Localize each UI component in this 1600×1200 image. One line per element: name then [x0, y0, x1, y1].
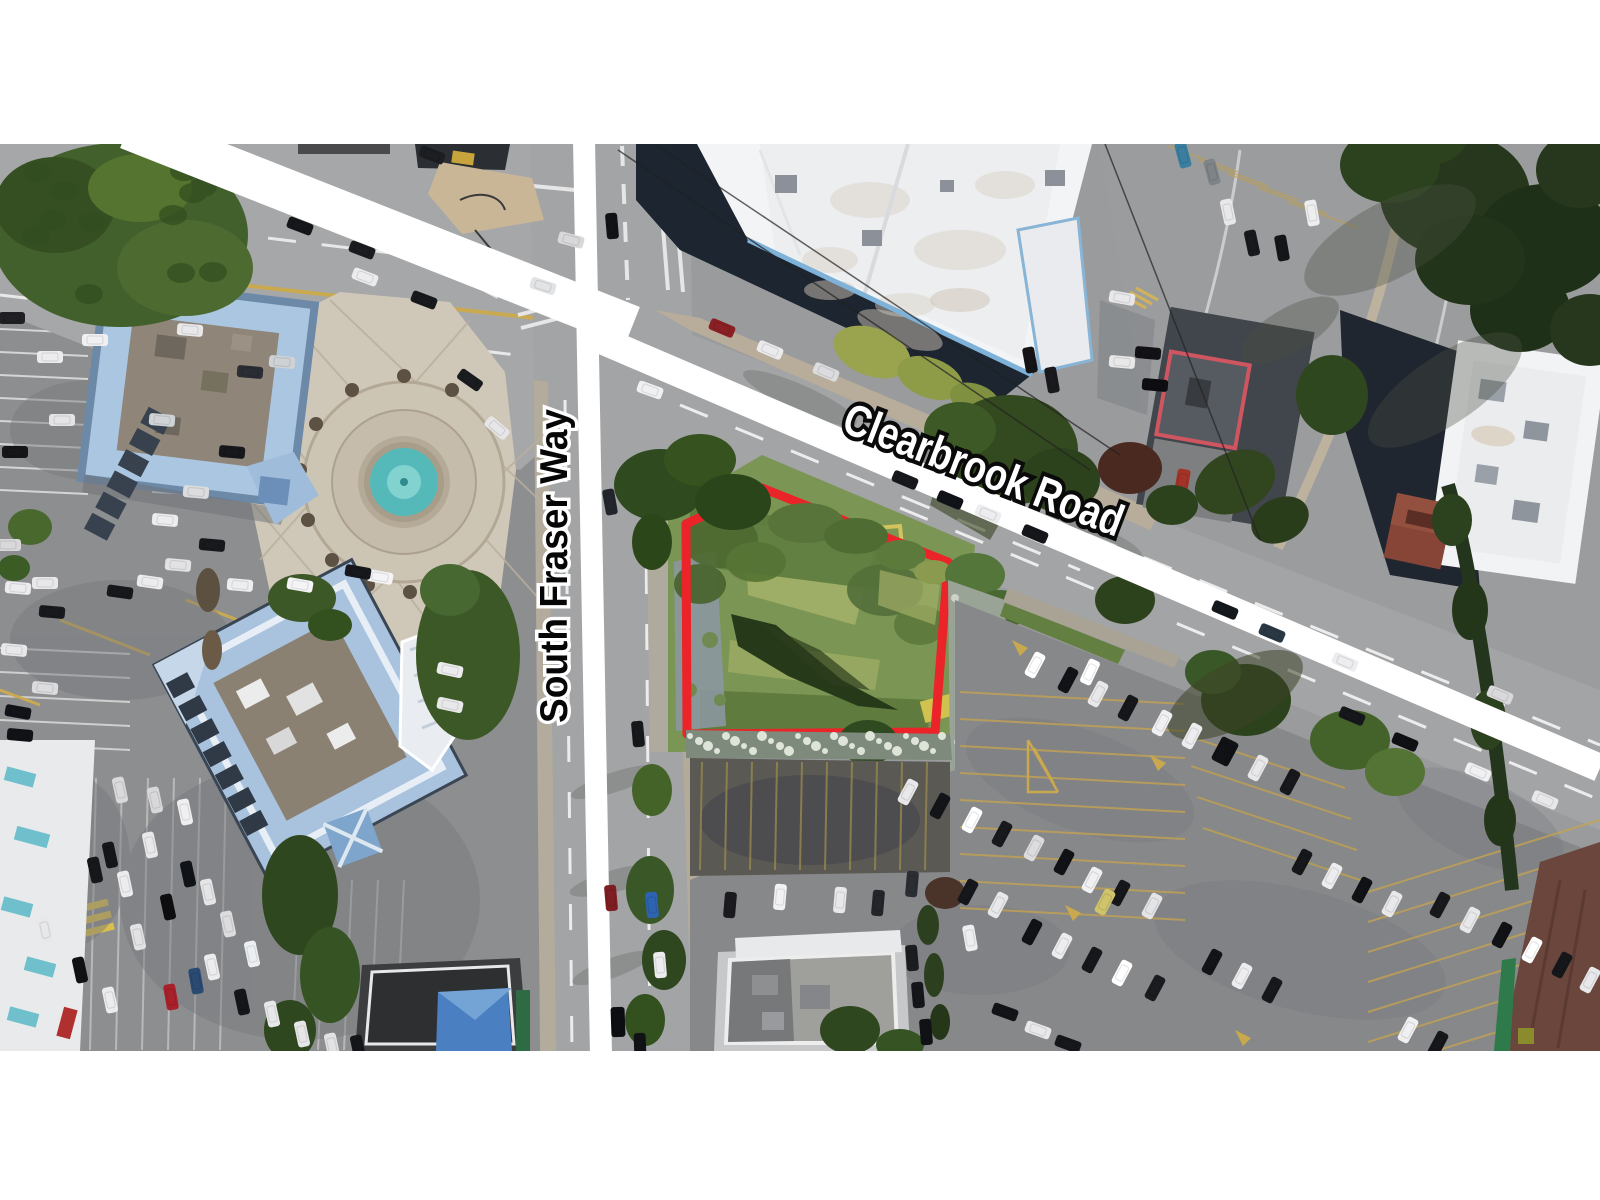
svg-text:South Fraser Way: South Fraser Way	[533, 409, 576, 723]
